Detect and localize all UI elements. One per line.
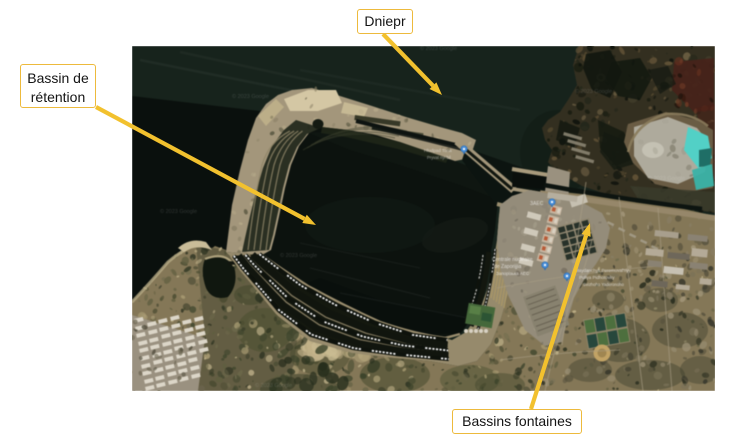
svg-text:Svizhoho Yaderonoho: Svizhoho Yaderonoho [583,282,624,287]
svg-text:Pryvat nyi bil: Pryvat nyi bil [427,155,451,160]
svg-text:© 2023 Google: © 2023 Google [255,382,292,389]
svg-text:Centrale nucléaire: Centrale nucléaire [492,257,533,263]
svg-text:© 2023 Google: © 2023 Google [280,252,317,259]
svg-text:© 2023 Google: © 2023 Google [420,45,457,52]
svg-text:de Zaporijjia: de Zaporijjia [494,264,521,270]
svg-text:ЗАЕС: ЗАЕС [530,201,544,207]
svg-text:© 2023 Google: © 2023 Google [160,208,197,215]
svg-text:© 2023 Google: © 2023 Google [232,93,269,100]
svg-text:Maydanchyk Peremuval'nyy: Maydanchyk Peremuval'nyy [575,268,632,273]
svg-text:© 2023 Google: © 2023 Google [575,88,612,95]
svg-text:Hludpad Tona: Hludpad Tona [424,148,452,153]
svg-text:Запорізька АЕС: Запорізька АЕС [496,271,530,276]
svg-text:Puliya Pidhotovky: Puliya Pidhotovky [579,275,615,280]
svg-text:© 2023 Google: © 2023 Google [648,175,685,182]
